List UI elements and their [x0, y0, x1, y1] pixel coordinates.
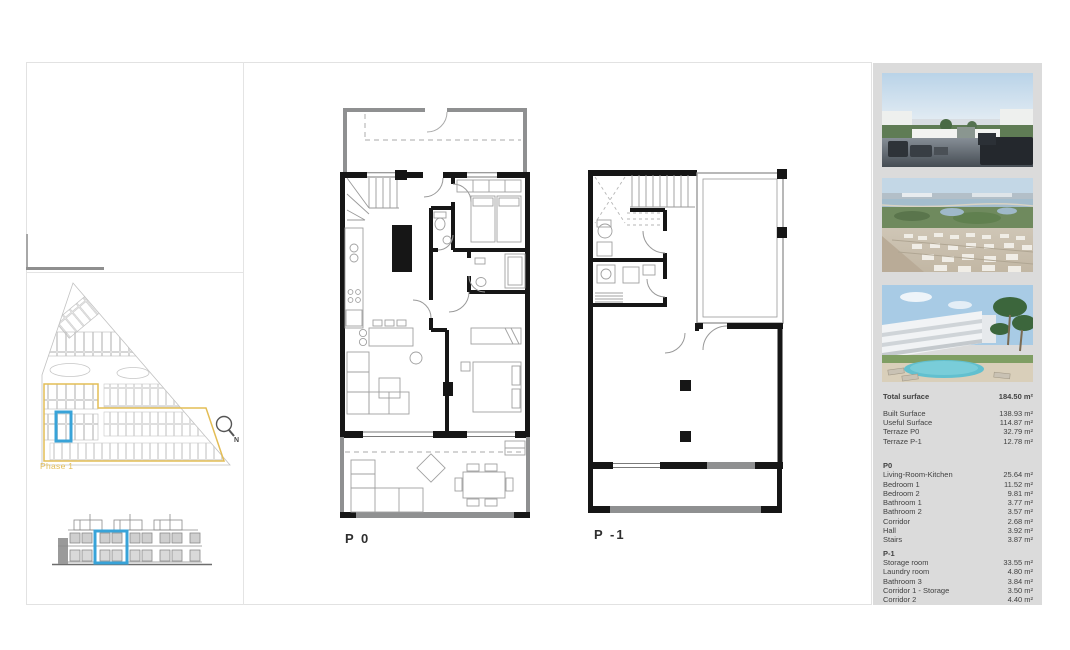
- surface-row: Bathroom 13.77 m²: [883, 498, 1033, 507]
- surface-row: Terraze P-112.78 m²: [883, 437, 1033, 446]
- left-cell-divider: [26, 272, 244, 273]
- living-room-furniture: [347, 352, 422, 414]
- column: [680, 431, 691, 442]
- bedroom2-furniture: [461, 328, 521, 412]
- bathroom1-fixtures: [434, 212, 451, 244]
- bedroom1-furniture: [457, 180, 521, 242]
- site-units-row: [46, 332, 150, 356]
- column: [680, 380, 691, 391]
- surface-row: Corridor 24.40 m²: [883, 595, 1033, 604]
- floorplan-p0: [335, 100, 535, 530]
- neighbor-plan-fragment: [26, 234, 28, 270]
- total-surface-row: Total surface 184.50 m²: [883, 392, 1033, 401]
- summary-rows: Built Surface138.93 m² Useful Surface114…: [883, 409, 1033, 446]
- brochure-page: N Phase 1: [0, 0, 1070, 650]
- surface-row: Bedroom 111.52 m²: [883, 480, 1033, 489]
- surface-table: Total surface 184.50 m² Built Surface138…: [883, 392, 1033, 604]
- compass-n-label: N: [234, 437, 239, 444]
- surface-row: Built Surface138.93 m²: [883, 409, 1033, 418]
- photo-terrace-view: [882, 73, 1033, 167]
- surface-row: Terraze P032.79 m²: [883, 427, 1033, 436]
- dining-set: [359, 320, 413, 346]
- surface-row: Corridor 1 - Storage3.50 m²: [883, 586, 1033, 595]
- surface-row: Storage room33.55 m²: [883, 558, 1033, 567]
- kitchen-fixtures: [345, 225, 412, 328]
- photo-aerial-view: [882, 178, 1033, 272]
- site-plan: N: [30, 280, 245, 480]
- surface-row: Stairs3.87 m²: [883, 535, 1033, 544]
- surface-row: Bathroom 23.57 m²: [883, 507, 1033, 516]
- p1-rows: Storage room33.55 m² Laundry room4.80 m²…: [883, 558, 1033, 604]
- stairs: [347, 178, 399, 220]
- site-units-row: [104, 412, 224, 436]
- stairs-p1: [630, 175, 695, 207]
- patio-lightwell: [697, 173, 783, 323]
- photo-pool-view: [882, 285, 1033, 382]
- p0-section-heading: P0: [883, 461, 1033, 470]
- bathroom2-fixtures: [475, 254, 525, 288]
- bathroom3-fixtures: [597, 220, 612, 256]
- site-units-row: [44, 384, 98, 409]
- surface-row: Laundry room4.80 m²: [883, 567, 1033, 576]
- site-units-row: [50, 443, 222, 461]
- p1-section-heading: P-1: [883, 549, 1033, 558]
- plan-p0-label: P 0: [345, 531, 370, 546]
- laundry-fixtures: [595, 265, 655, 302]
- site-units-row: [104, 384, 212, 407]
- site-units-row: [158, 340, 204, 360]
- surface-row: Corridor2.68 m²: [883, 517, 1033, 526]
- surface-row: Bedroom 29.81 m²: [883, 489, 1033, 498]
- surface-row: Bathroom 33.84 m²: [883, 577, 1033, 586]
- surface-row: Living-Room-Kitchen25.64 m²: [883, 470, 1033, 479]
- info-panel: Total surface 184.50 m² Built Surface138…: [873, 63, 1042, 605]
- surface-row: Useful Surface114.87 m²: [883, 418, 1033, 427]
- p0-rows: Living-Room-Kitchen25.64 m² Bedroom 111.…: [883, 470, 1033, 544]
- phase-label: Phase 1: [40, 461, 73, 471]
- plan-p-1-label: P -1: [594, 527, 626, 542]
- floorplan-p-1: [585, 165, 795, 525]
- building-elevation: [50, 508, 215, 572]
- surface-row: Hall3.92 m²: [883, 526, 1033, 535]
- compass-north-icon: [217, 417, 235, 437]
- neighbor-plan-fragment: [26, 267, 104, 270]
